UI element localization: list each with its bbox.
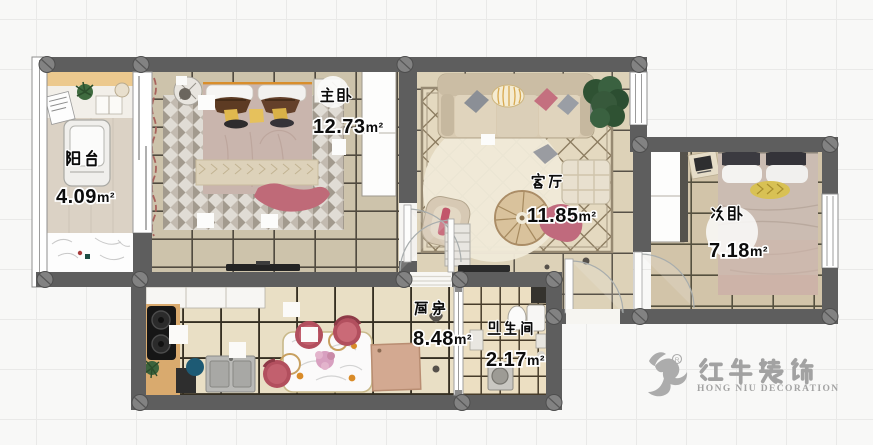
svg-text:7.18m²: 7.18m² bbox=[709, 240, 768, 262]
svg-text:R: R bbox=[675, 357, 680, 364]
svg-text:12.73m²: 12.73m² bbox=[313, 116, 384, 138]
svg-text:11.85m²: 11.85m² bbox=[527, 205, 597, 227]
svg-text:8.48m²: 8.48m² bbox=[413, 328, 472, 350]
svg-text:4.09m²: 4.09m² bbox=[56, 186, 115, 208]
svg-text:HONG NIU DECORATION: HONG NIU DECORATION bbox=[697, 384, 840, 394]
svg-text:2.17m²: 2.17m² bbox=[486, 349, 545, 371]
